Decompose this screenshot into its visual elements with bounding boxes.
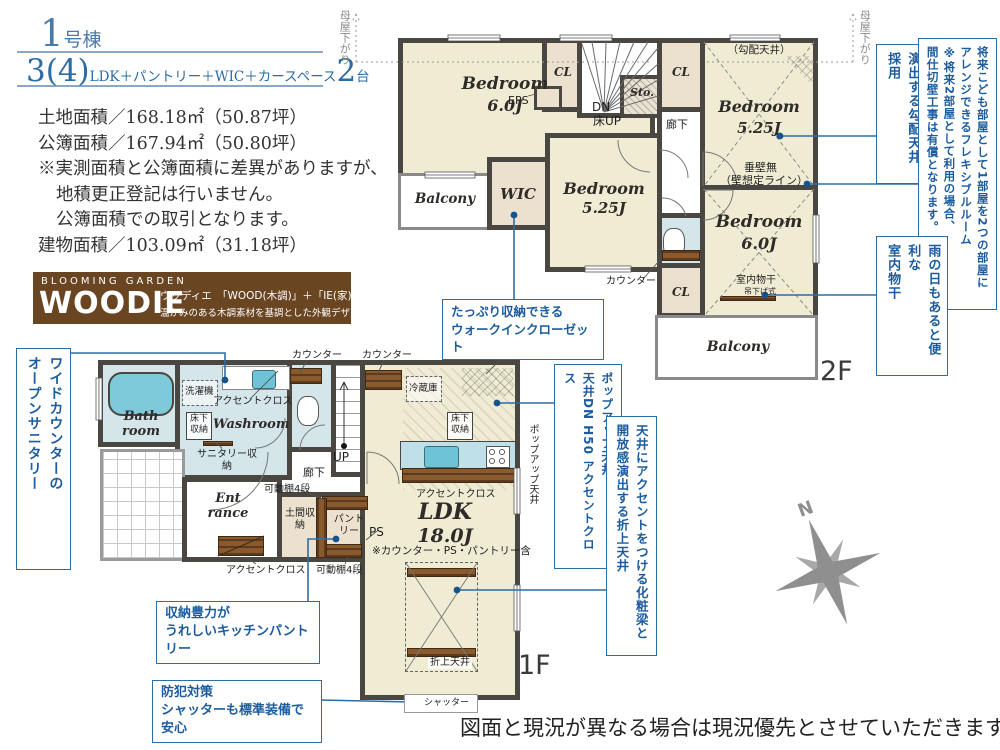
pantry-shelf-side bbox=[316, 498, 327, 558]
compass-north-label: N bbox=[795, 497, 816, 522]
plan-desc: LDK＋パントリー＋WIC＋カースペース bbox=[90, 69, 337, 85]
callout-indoor-drying: 雨の日もあると便利な 室内物干 bbox=[876, 236, 948, 376]
callout-security: 防犯対策 シャッターも標準装備で安心 bbox=[152, 680, 322, 743]
brand-reading-formula: ウッディエ 「WOOD(木調)」＋「IE(家)」 bbox=[160, 288, 362, 303]
pantry-label: パントリー bbox=[331, 514, 367, 538]
bedroom-mid-size: 5.25J bbox=[558, 200, 650, 217]
shutter-label: シャッター bbox=[424, 698, 469, 709]
entrance-approach bbox=[100, 449, 185, 561]
callout-line: 天井DN H50 アクセントクロス bbox=[560, 372, 597, 561]
callout-wic: たっぷり収納できる ウォークインクローゼット bbox=[442, 299, 604, 360]
washer-label: 洗濯機 bbox=[185, 386, 214, 397]
ldk-note: ※カウンター・PS・パントリー含 bbox=[372, 545, 531, 558]
callout-line: 防犯対策 bbox=[161, 684, 313, 702]
callout-line: ワイドカウンターの bbox=[44, 356, 66, 562]
callout-line: 雨の日もあると便利な bbox=[902, 244, 942, 368]
bedroom-se-name: Bedroom bbox=[712, 213, 806, 232]
callout-line: 室内物干 bbox=[882, 244, 902, 368]
toilet-1f-icon bbox=[297, 396, 319, 426]
drying-bar bbox=[720, 296, 776, 301]
eps-label: EPS bbox=[508, 94, 529, 107]
stairs-dn-label: DN bbox=[592, 100, 610, 114]
cl-a-label: CL bbox=[549, 66, 577, 79]
washroom-label: Washroom bbox=[213, 418, 287, 433]
ps-label: PS bbox=[369, 525, 384, 539]
site-info-line: 地積更正登記は行いません。 bbox=[38, 183, 388, 209]
counter-b-label: カウンター bbox=[362, 350, 412, 362]
toilet-2f-counter bbox=[662, 250, 700, 261]
callout-line: オープンサニタリー bbox=[22, 356, 44, 562]
callout-beam: 天井にアクセントをつける化粧梁と 開放感演出する折上天井 bbox=[606, 416, 657, 656]
brand-formula: 「WOOD(木調)」＋「IE(家)」 bbox=[222, 290, 362, 302]
callout-line: アレンジできるフレキシブルルーム bbox=[957, 46, 974, 302]
doma-label: 土間収納 bbox=[284, 508, 316, 532]
bedroom-se-size: 6.0J bbox=[712, 235, 806, 253]
bedroom-ne-size: 5.25J bbox=[712, 120, 806, 137]
site-info-line: 土地面積／168.18㎡（50.87坪） bbox=[38, 106, 388, 132]
fridge-label: 冷蔵庫 bbox=[409, 383, 438, 394]
site-info-line: 建物面積／103.09㎡（31.18坪） bbox=[38, 234, 388, 260]
counter-a-label: カウンター bbox=[292, 350, 342, 362]
unit-suffix: 号棟 bbox=[64, 29, 102, 51]
balcony-south-label: Balcony bbox=[690, 340, 786, 356]
callout-line: ウォークインクローゼット bbox=[451, 321, 595, 356]
floor2-label: 2F bbox=[820, 356, 853, 388]
kitchen-sink bbox=[424, 446, 459, 468]
washroom-sink bbox=[252, 370, 276, 389]
brand-reading: ウッディエ bbox=[160, 290, 212, 302]
sloped-ceiling-note: （勾配天井） bbox=[713, 44, 805, 57]
unit-title: 1号棟 bbox=[40, 12, 102, 55]
moyasagari-right: 母屋下がり bbox=[858, 10, 871, 80]
callout-line: 将来こども部屋として1部屋を2つの部屋に bbox=[974, 46, 991, 302]
callout-line: うれしいキッチンパントリー bbox=[165, 623, 311, 659]
bath-label: Bath room bbox=[116, 410, 166, 439]
oriage-beam-top bbox=[407, 568, 476, 577]
hall-2f-label: 廊下 bbox=[666, 118, 688, 131]
callout-pantry: 収納豊力が うれしいキッチンパントリー bbox=[156, 601, 320, 664]
ceiling-dn-hatch bbox=[462, 368, 513, 396]
entrance-label: Ent rance bbox=[200, 492, 256, 521]
stove bbox=[486, 446, 510, 468]
shoe-cabinet bbox=[218, 536, 264, 556]
brand-box: BLOOMING GARDEN WOODIE ウッディエ 「WOOD(木調)」＋… bbox=[33, 272, 351, 324]
disclaimer: 図面と現況が異なる場合は現況優先とさせていただきます。 bbox=[460, 716, 1000, 741]
underfloor-kitchen-label: 床下収納 bbox=[447, 412, 473, 440]
floorplan-flyer: 1号棟 3(4)LDK＋パントリー＋WIC＋カースペース2台 土地面積／168.… bbox=[0, 0, 1000, 750]
compass-rose: N bbox=[749, 480, 900, 643]
callout-line: 演出する勾配天井採用 bbox=[882, 52, 922, 176]
popup-ceiling-plan-label: ポップアップ天井 bbox=[526, 424, 538, 516]
site-info-line: 公簿面積／167.94㎡（50.80坪） bbox=[38, 132, 388, 158]
wic-2f-label: WIC bbox=[492, 186, 544, 203]
oriage-beam-bottom bbox=[407, 648, 476, 657]
accent-ent-label: アクセントクロス bbox=[226, 565, 306, 577]
floor-up-label: 床UP bbox=[593, 114, 621, 128]
plan-cars-suffix: 台 bbox=[356, 69, 370, 85]
bedroom-mid-name: Bedroom bbox=[558, 180, 650, 198]
tarekabe-line-label: （壁想定ライン） bbox=[720, 174, 808, 187]
pantry-shelf-bottom bbox=[322, 544, 362, 558]
callout-line: シャッターも標準装備で安心 bbox=[161, 702, 313, 738]
shelf-a-label: 可動棚4段 bbox=[264, 484, 310, 496]
tarekabe-label: 垂壁無 bbox=[744, 161, 777, 174]
callout-open-sanitary: ワイドカウンターの オープンサニタリー bbox=[16, 348, 71, 570]
floor1-label: 1F bbox=[518, 650, 551, 682]
counter-a-wood bbox=[290, 368, 322, 384]
plan-title: 3(4)LDK＋パントリー＋WIC＋カースペース2台 bbox=[26, 53, 370, 89]
counter-2f-label: カウンター bbox=[606, 276, 656, 288]
up-label: UP bbox=[333, 450, 349, 464]
sanitary-storage-label: サニタリー収納 bbox=[196, 449, 258, 473]
pantry-shelf-top bbox=[322, 496, 368, 510]
hall-1f-label: 廊下 bbox=[303, 466, 325, 479]
counter-b-wood bbox=[365, 370, 402, 390]
plan-count: 3(4) bbox=[26, 53, 90, 89]
site-info: 土地面積／168.18㎡（50.87坪） 公簿面積／167.94㎡（50.80坪… bbox=[38, 106, 388, 259]
accent-wash-label: アクセントクロス bbox=[213, 396, 293, 408]
indoor-drying-label: 室内物干 bbox=[736, 275, 776, 287]
callout-line: 開放感演出する折上天井 bbox=[612, 424, 631, 648]
callout-line: たっぷり収納できる bbox=[451, 303, 595, 321]
sanitary-shelf bbox=[203, 441, 233, 446]
callout-line: 天井にアクセントをつける化粧梁と bbox=[631, 424, 650, 648]
brand-tagline: 温かみのある木調素材を基調とした外観デザイン bbox=[160, 305, 369, 319]
site-info-line: 公簿面積での取引となります。 bbox=[38, 208, 388, 234]
site-info-line: ※実測面積と公簿面積に差異がありますが、 bbox=[38, 157, 388, 183]
balcony-west-label: Balcony bbox=[403, 192, 487, 207]
underfloor-wash-label: 床下収納 bbox=[186, 412, 212, 440]
hanging-type-label: 吊下げ式 bbox=[744, 287, 776, 297]
ldk-name: LDK bbox=[400, 500, 490, 525]
callout-line: 収納豊力が bbox=[165, 605, 311, 623]
storage-2f-label: Sto. bbox=[626, 87, 658, 99]
bedroom-ne-name: Bedroom bbox=[712, 98, 806, 116]
moyasagari-left: 母屋下がり bbox=[338, 10, 351, 80]
bedroom-nw-size: 6.0J bbox=[440, 97, 570, 115]
cl-c-label: CL bbox=[667, 286, 695, 299]
unit-number: 1 bbox=[40, 12, 64, 55]
cl-b-label: CL bbox=[667, 66, 695, 79]
shelf-b-label: 可動棚4段 bbox=[316, 565, 362, 577]
island-base-wood bbox=[402, 468, 516, 483]
oriage-label: 折上天井 bbox=[428, 657, 472, 669]
